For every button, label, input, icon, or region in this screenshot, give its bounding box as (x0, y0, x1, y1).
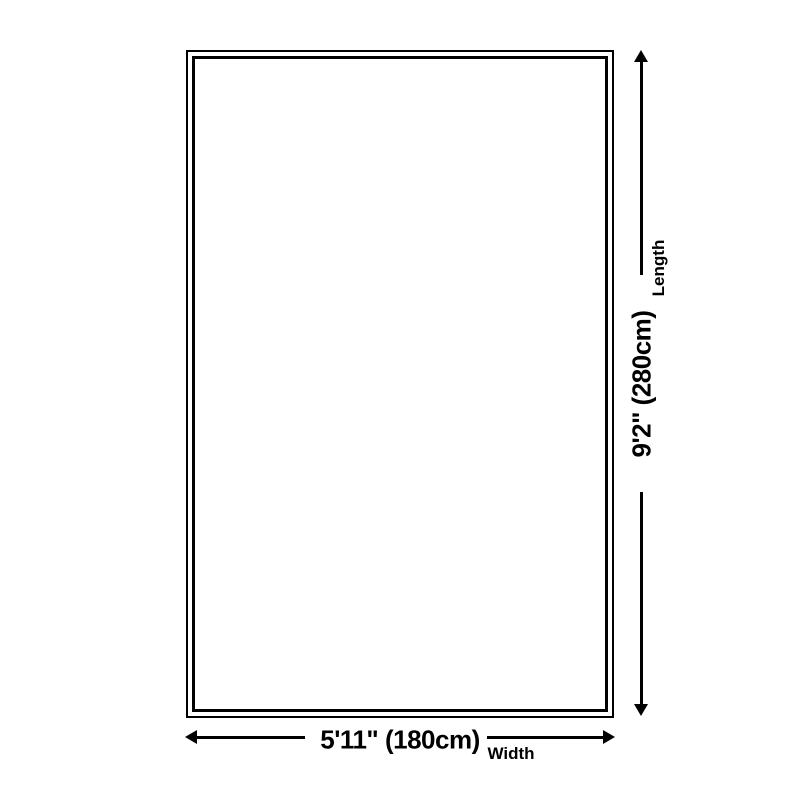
length-value-label: 9'2" (280cm) (627, 311, 658, 458)
width-arrow-left-segment (197, 736, 305, 739)
rug-size-diagram: Length 9'2" (280cm) 5'11" (180cm) Width (0, 0, 800, 800)
rug-inner-border (192, 56, 608, 712)
length-axis-label: Length (649, 240, 669, 297)
arrowhead-right-icon (603, 730, 615, 744)
width-value-label: 5'11" (180cm) (320, 725, 479, 756)
width-axis-label: Width (487, 744, 534, 764)
arrowhead-down-icon (634, 704, 648, 716)
rug-outer-border (186, 50, 614, 718)
length-arrow-bottom-segment (640, 492, 643, 705)
length-arrow-top-segment (640, 60, 643, 275)
arrowhead-left-icon (185, 730, 197, 744)
width-arrow-right-segment (487, 736, 603, 739)
